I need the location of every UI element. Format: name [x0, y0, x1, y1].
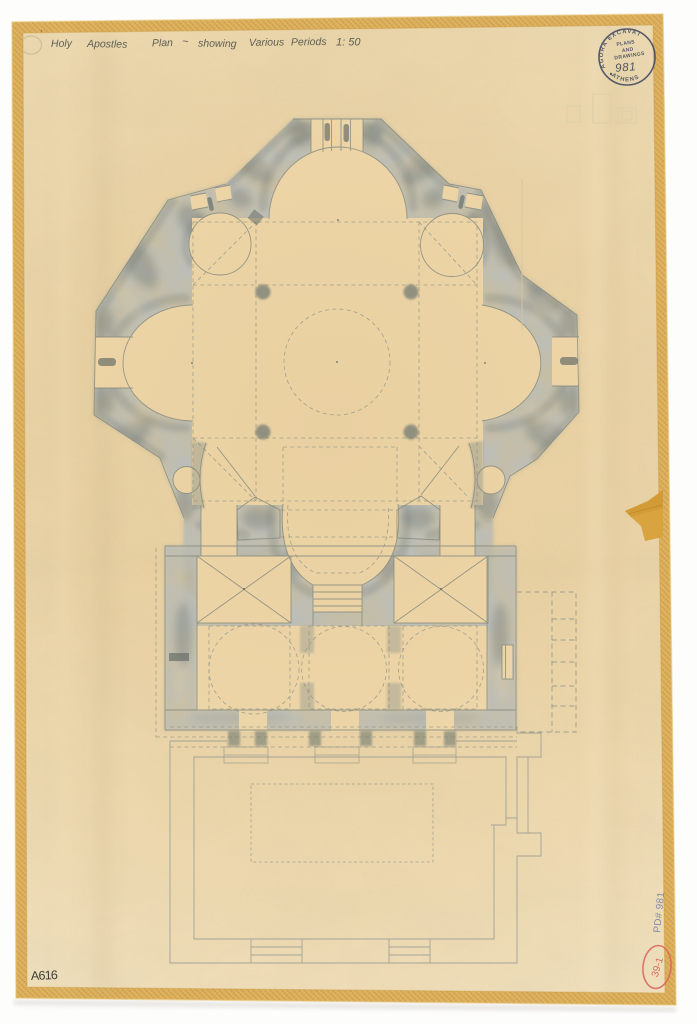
- svg-text:showing: showing: [198, 38, 237, 51]
- svg-text:981: 981: [615, 61, 637, 75]
- svg-text:Holy: Holy: [51, 38, 73, 50]
- svg-text:Apostles: Apostles: [86, 38, 128, 51]
- svg-text:~: ~: [182, 36, 189, 48]
- svg-text:Various: Various: [249, 36, 285, 49]
- svg-text:Periods: Periods: [291, 36, 328, 49]
- svg-text:A616: A616: [31, 968, 59, 983]
- svg-text:1: 50: 1: 50: [336, 37, 361, 49]
- svg-text:Plan: Plan: [152, 37, 173, 50]
